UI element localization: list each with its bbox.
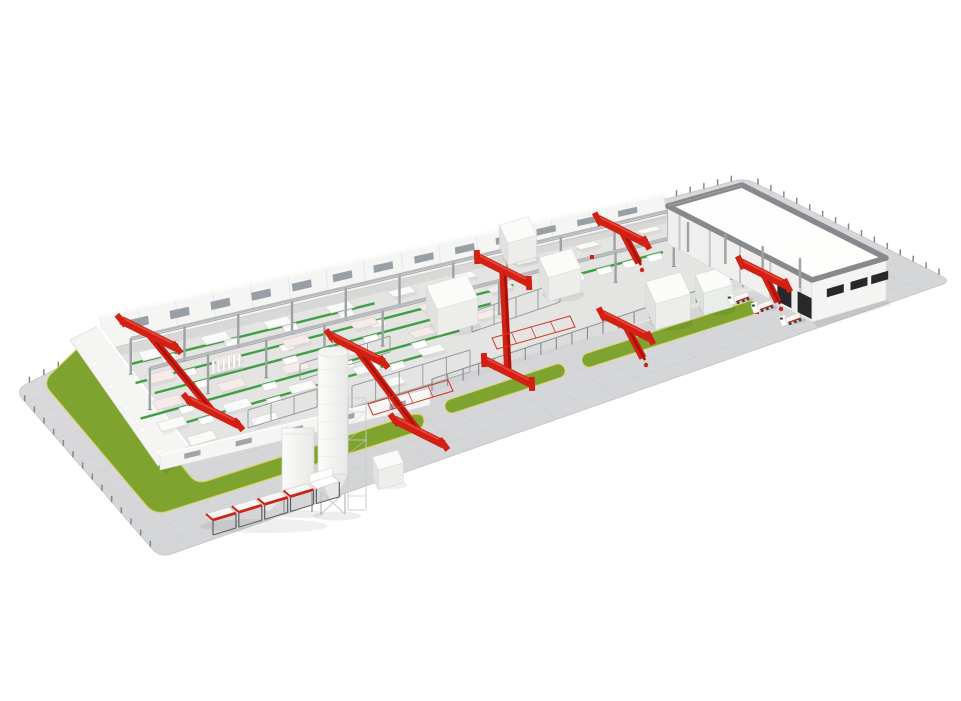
truck-wheel-icon: [766, 307, 769, 310]
crane-end-carriage: [484, 353, 485, 367]
factory-3d-render: [0, 0, 961, 701]
runway-column: [237, 313, 239, 347]
runway-column: [183, 325, 185, 360]
truck-wheel-icon: [742, 299, 745, 302]
red-marker-icon: [590, 255, 594, 259]
runway-column: [291, 300, 293, 333]
runway-column: [345, 287, 347, 319]
runway-column: [398, 274, 400, 306]
plant-scene-svg: [0, 0, 961, 701]
runway-column: [130, 338, 132, 374]
truck-wheel-icon: [761, 309, 764, 312]
bins-shadow: [200, 519, 328, 533]
cement-silo-body: [318, 352, 348, 474]
crane-end-carriage: [532, 377, 533, 391]
mould-fin: [238, 353, 241, 367]
silo-top: [318, 347, 348, 357]
crane-hook-icon: [640, 268, 644, 272]
truck-windshield: [780, 318, 783, 320]
runway-column: [149, 368, 151, 410]
crane-end-carriage: [529, 276, 530, 290]
canopy-column: [799, 258, 801, 288]
mould-fin: [217, 359, 220, 373]
crane-hook-icon: [644, 363, 648, 367]
truck-wheel-icon: [794, 320, 797, 323]
runway-column: [381, 309, 383, 346]
mould-fin: [228, 356, 231, 370]
truck-wheel-icon: [771, 305, 774, 308]
hopper-shadow: [280, 510, 324, 518]
canopy-column: [724, 234, 726, 264]
truck-wheel-icon: [747, 297, 750, 300]
truck-wheel-icon: [737, 301, 740, 304]
crane-end-carriage: [477, 250, 478, 264]
canopy-column: [687, 222, 689, 252]
truck-windshield: [752, 305, 755, 307]
mould-fin: [222, 357, 225, 371]
truck-windshield: [728, 297, 731, 299]
crane-hook-icon: [779, 307, 783, 311]
runway-column: [614, 251, 616, 282]
truck-wheel-icon: [789, 322, 792, 325]
runway-column: [498, 280, 500, 314]
runway-column: [265, 338, 267, 377]
mould-fin: [212, 360, 215, 374]
mould-fin: [233, 354, 236, 368]
runway-column: [207, 353, 209, 394]
truck-wheel-icon: [799, 318, 802, 321]
